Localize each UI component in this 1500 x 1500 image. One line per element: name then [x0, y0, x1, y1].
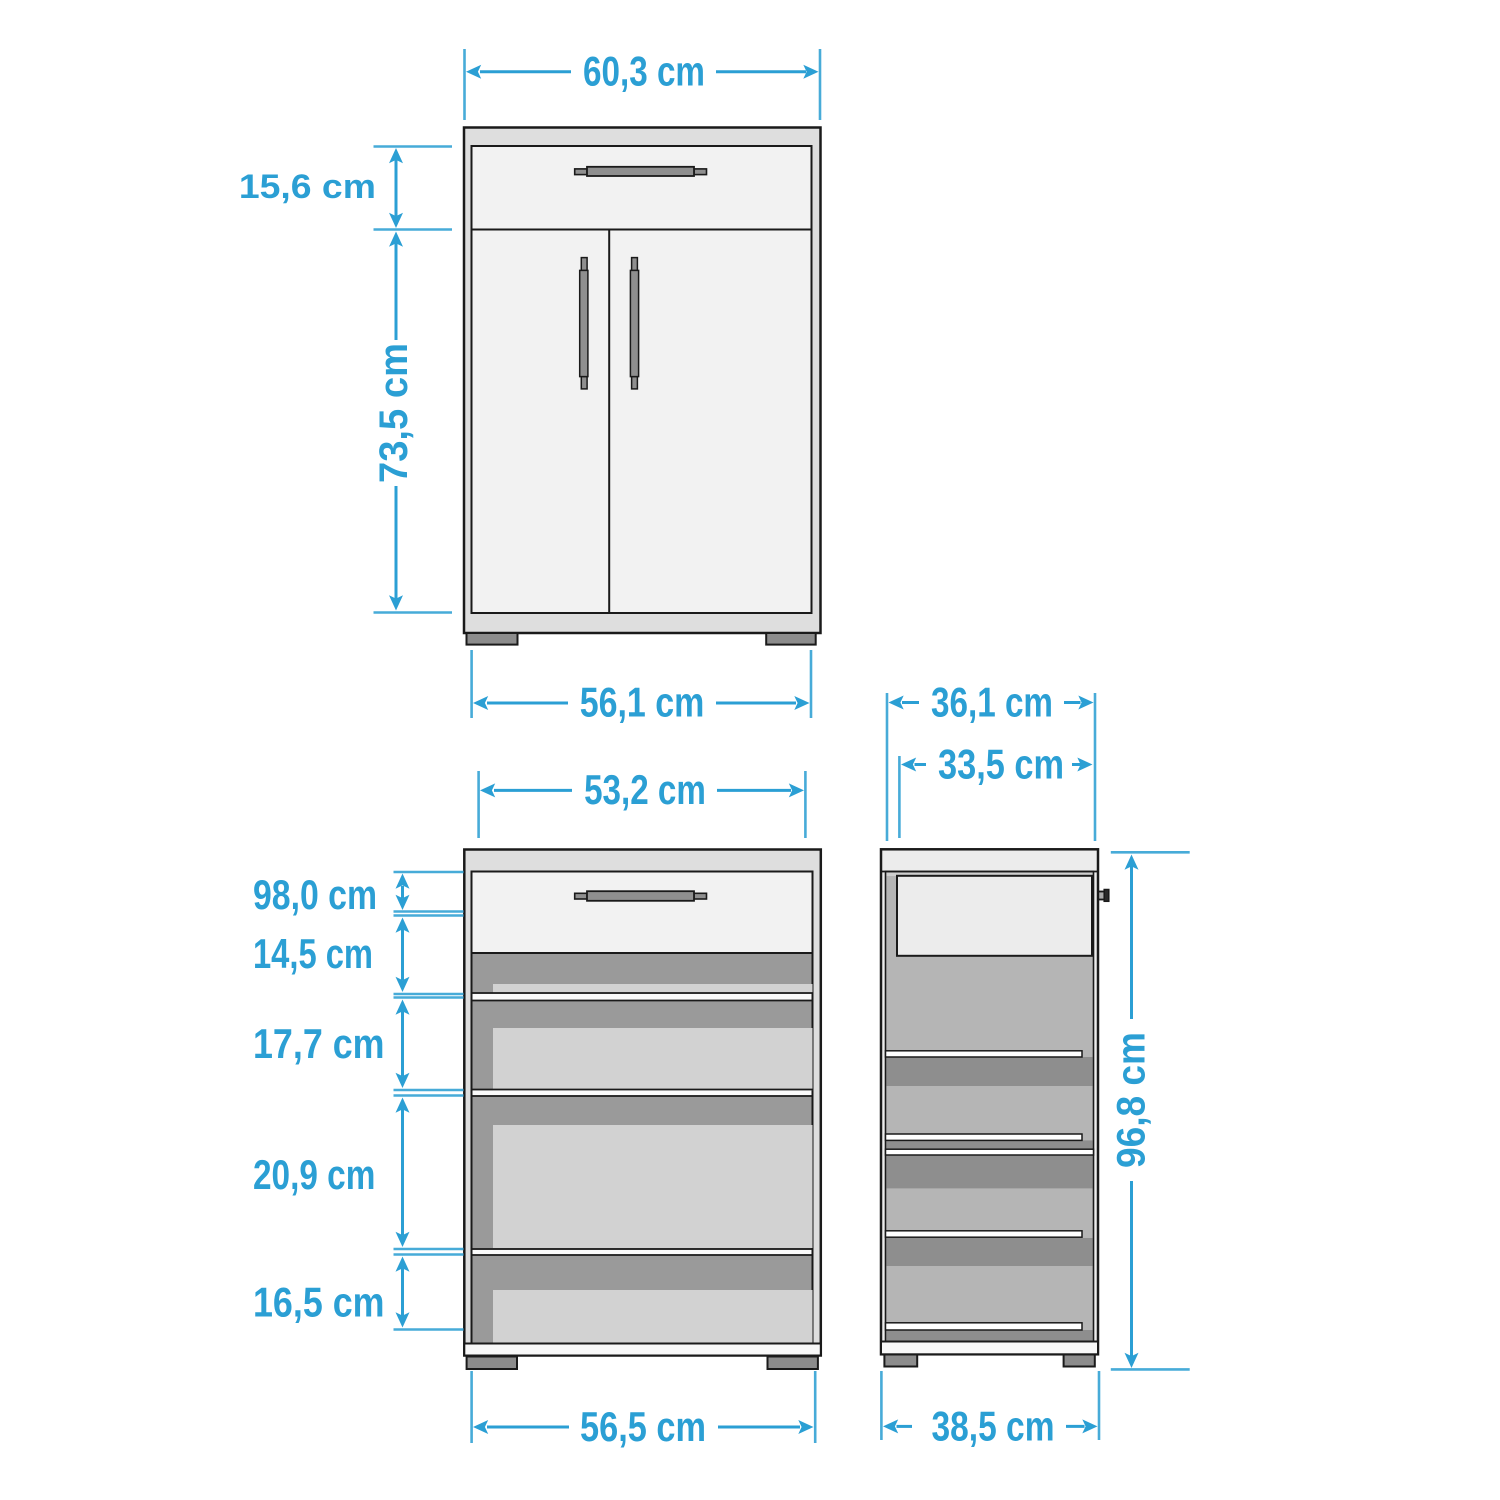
svg-text:16,5 cm: 16,5 cm [253, 1278, 385, 1325]
svg-text:38,5 cm: 38,5 cm [932, 1402, 1055, 1449]
svg-text:17,7 cm: 17,7 cm [253, 1020, 385, 1067]
svg-text:53,2 cm: 53,2 cm [584, 766, 706, 813]
svg-text:98,0 cm: 98,0 cm [253, 871, 377, 918]
svg-text:36,1 cm: 36,1 cm [931, 678, 1053, 725]
svg-text:33,5 cm: 33,5 cm [938, 740, 1064, 787]
svg-text:20,9 cm: 20,9 cm [253, 1151, 375, 1198]
svg-text:56,1 cm: 56,1 cm [580, 678, 705, 725]
svg-text:96,8 cm: 96,8 cm [1109, 1032, 1153, 1168]
svg-text:56,5 cm: 56,5 cm [580, 1403, 706, 1450]
svg-text:60,3 cm: 60,3 cm [583, 48, 705, 95]
svg-text:14,5 cm: 14,5 cm [253, 930, 373, 977]
svg-text:15,6 cm: 15,6 cm [239, 168, 376, 206]
svg-text:73,5 cm: 73,5 cm [372, 343, 416, 483]
